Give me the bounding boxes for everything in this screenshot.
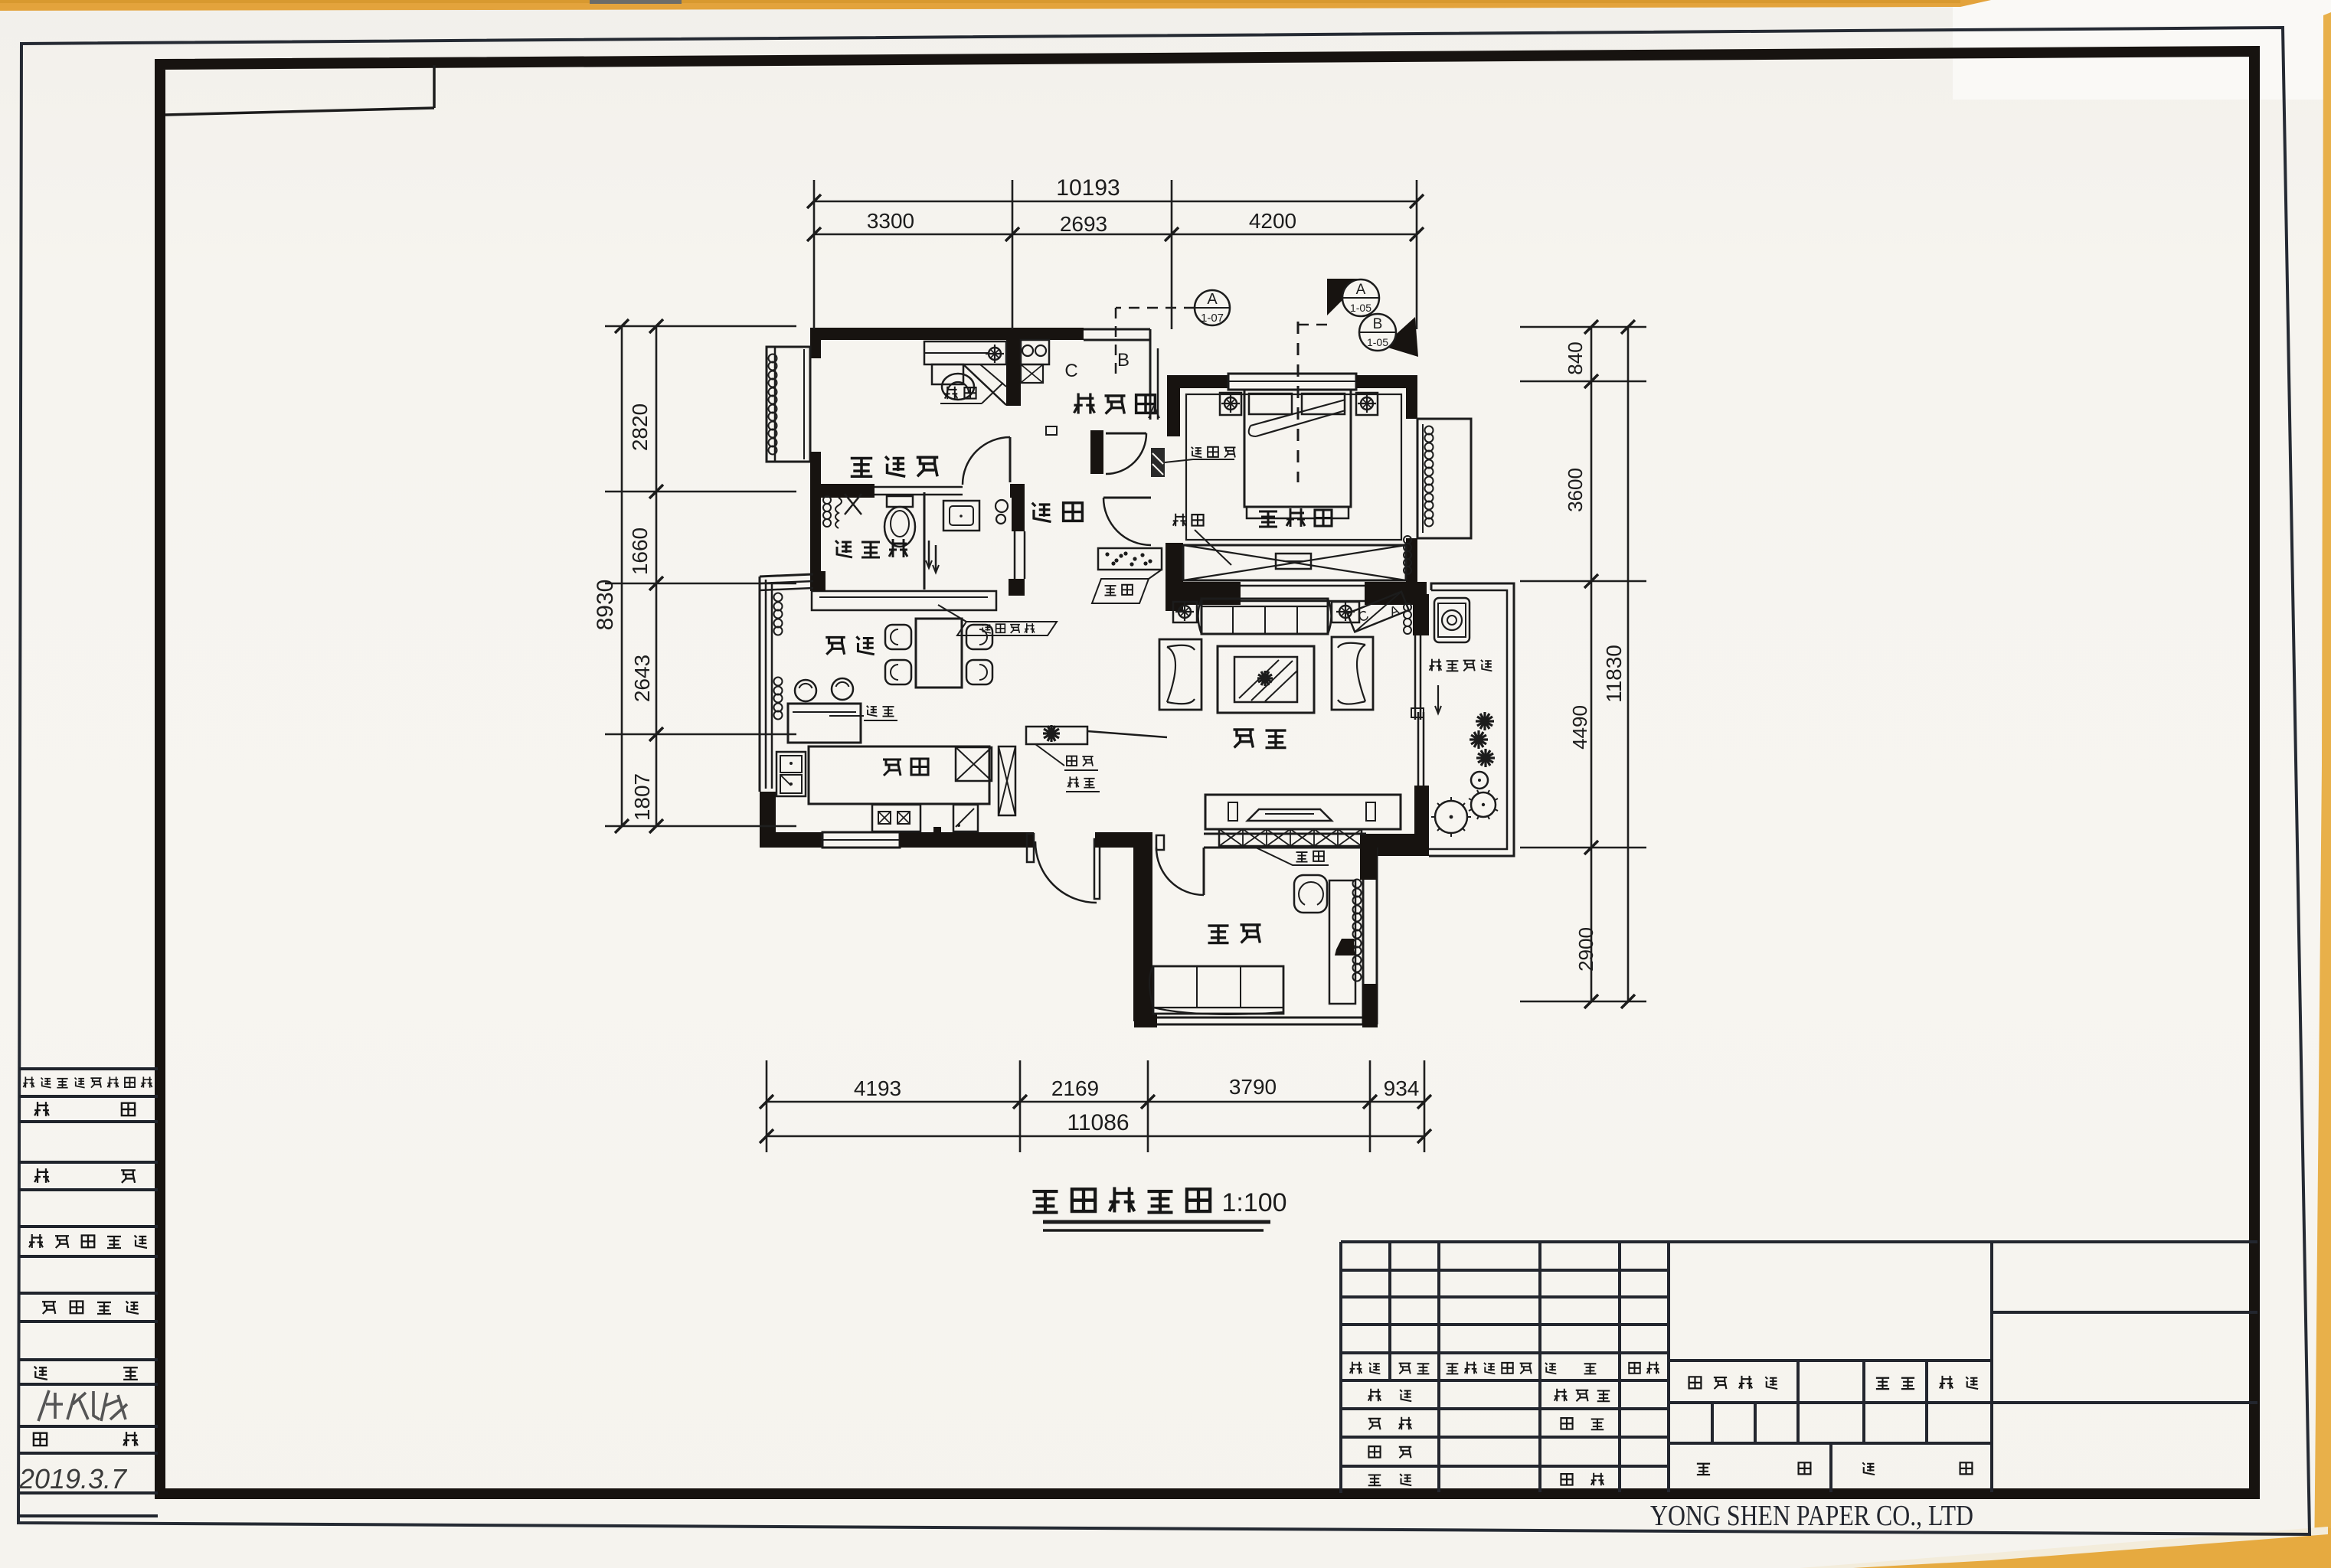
svg-text:C: C bbox=[1064, 361, 1077, 381]
svg-text:B: B bbox=[1373, 316, 1383, 332]
svg-text:YONG SHEN PAPER CO., LTD: YONG SHEN PAPER CO., LTD bbox=[1650, 1500, 1973, 1532]
svg-text:11830: 11830 bbox=[1602, 645, 1626, 703]
svg-text:A: A bbox=[1356, 282, 1366, 298]
svg-text:10193: 10193 bbox=[1056, 175, 1120, 201]
svg-text:4200: 4200 bbox=[1249, 209, 1296, 233]
svg-text:4193: 4193 bbox=[854, 1076, 901, 1100]
svg-text:2693: 2693 bbox=[1060, 212, 1107, 236]
svg-text:2643: 2643 bbox=[630, 655, 654, 702]
svg-text:1660: 1660 bbox=[628, 528, 652, 575]
svg-text:B: B bbox=[1117, 350, 1130, 371]
svg-text:A: A bbox=[1207, 291, 1218, 308]
svg-text:4490: 4490 bbox=[1568, 705, 1591, 750]
svg-text:3790: 3790 bbox=[1229, 1075, 1277, 1099]
svg-text:8930: 8930 bbox=[593, 580, 618, 631]
svg-text:11086: 11086 bbox=[1067, 1110, 1129, 1135]
svg-text:2169: 2169 bbox=[1051, 1076, 1099, 1100]
svg-text:2820: 2820 bbox=[628, 403, 652, 451]
svg-text:1-05: 1-05 bbox=[1350, 302, 1371, 314]
svg-text:934: 934 bbox=[1384, 1076, 1420, 1100]
svg-text:1807: 1807 bbox=[630, 773, 654, 821]
svg-text:A: A bbox=[1148, 402, 1160, 423]
svg-text:1-07: 1-07 bbox=[1201, 312, 1224, 325]
svg-text:3300: 3300 bbox=[867, 209, 914, 233]
svg-text:2900: 2900 bbox=[1574, 927, 1597, 972]
svg-text:840: 840 bbox=[1564, 341, 1587, 374]
svg-text:3600: 3600 bbox=[1564, 468, 1587, 512]
svg-text:1-05: 1-05 bbox=[1367, 336, 1388, 348]
svg-text:2019.3.7: 2019.3.7 bbox=[18, 1463, 128, 1494]
svg-text:1:100: 1:100 bbox=[1221, 1188, 1286, 1217]
